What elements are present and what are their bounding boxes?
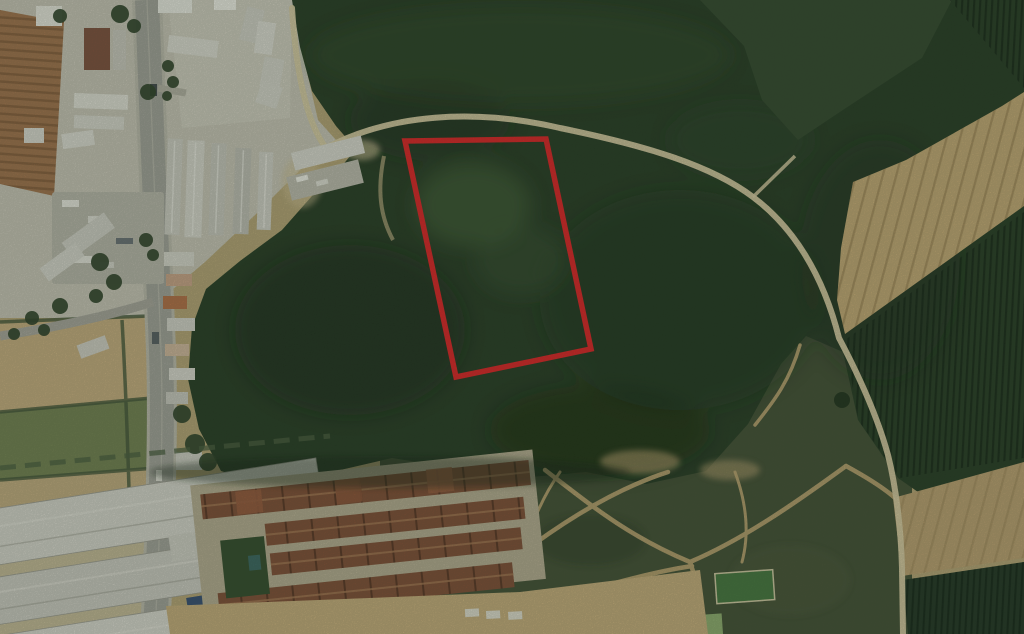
- image-grain-overlay: [0, 0, 1024, 634]
- satellite-image: [0, 0, 1024, 634]
- satellite-map-view: [0, 0, 1024, 634]
